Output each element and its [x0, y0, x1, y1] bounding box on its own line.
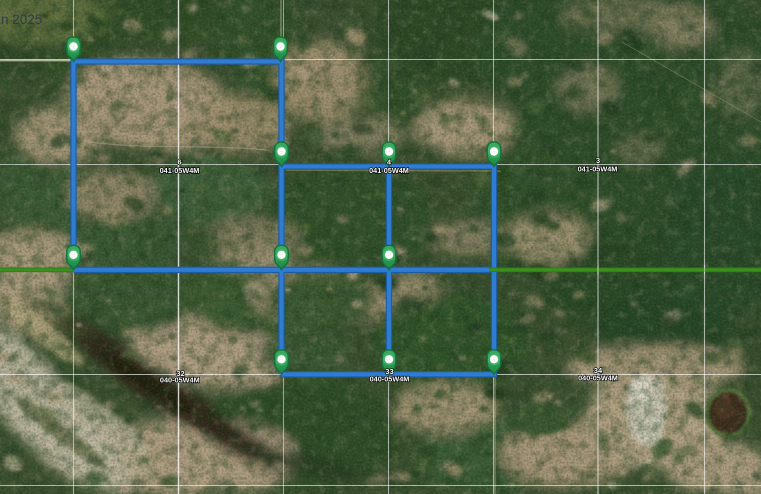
svg-text:040-05W4M: 040-05W4M — [160, 375, 200, 384]
svg-text:041-05W4M: 041-05W4M — [160, 166, 200, 175]
svg-text:040-05W4M: 040-05W4M — [578, 374, 618, 383]
svg-text:040-05W4M: 040-05W4M — [370, 375, 410, 384]
svg-text:n 2025: n 2025 — [1, 12, 42, 27]
svg-text:041-05W4M: 041-05W4M — [369, 166, 409, 175]
svg-text:041-05W4M: 041-05W4M — [578, 165, 618, 174]
